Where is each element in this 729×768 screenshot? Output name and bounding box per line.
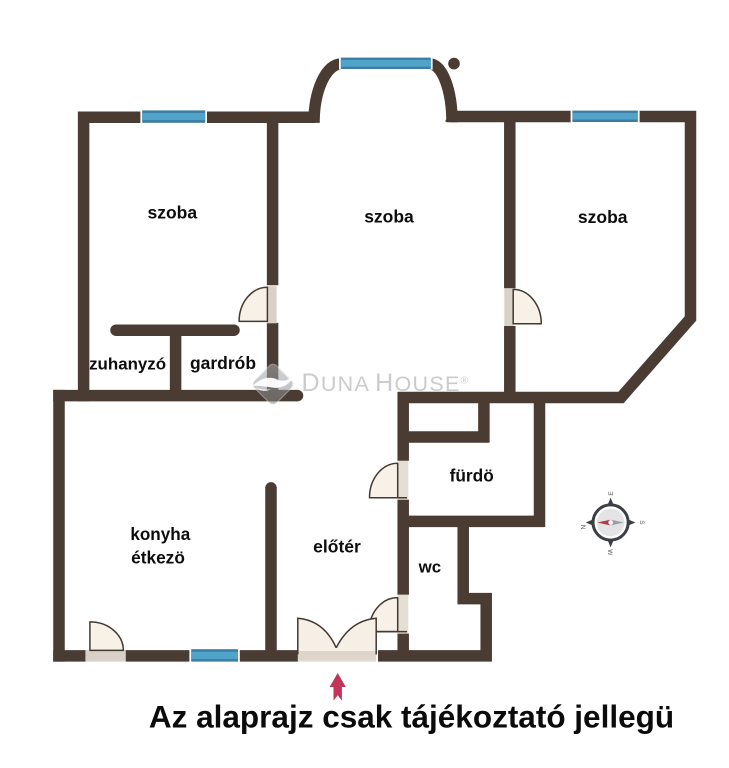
svg-text:S: S [638,520,645,525]
svg-text:zuhanyzó: zuhanyzó [89,354,166,373]
svg-text:Az alaprajz csak tájékoztató j: Az alaprajz csak tájékoztató jellegü [149,698,674,734]
svg-text:gardrób: gardrób [190,353,256,373]
svg-text:szoba: szoba [147,202,197,222]
svg-text:szoba: szoba [364,206,414,226]
svg-text:étkezö: étkezö [131,548,185,568]
svg-text:fürdö: fürdö [450,466,494,486]
svg-text:előtér: előtér [313,537,361,557]
svg-text:DUNAHOUSE®: DUNAHOUSE® [302,369,470,397]
svg-text:N: N [579,525,586,530]
svg-text:konyha: konyha [130,525,190,544]
svg-text:W: W [606,549,613,556]
svg-text:szoba: szoba [578,207,628,227]
svg-text:wc: wc [418,557,442,576]
svg-text:E: E [608,491,615,496]
